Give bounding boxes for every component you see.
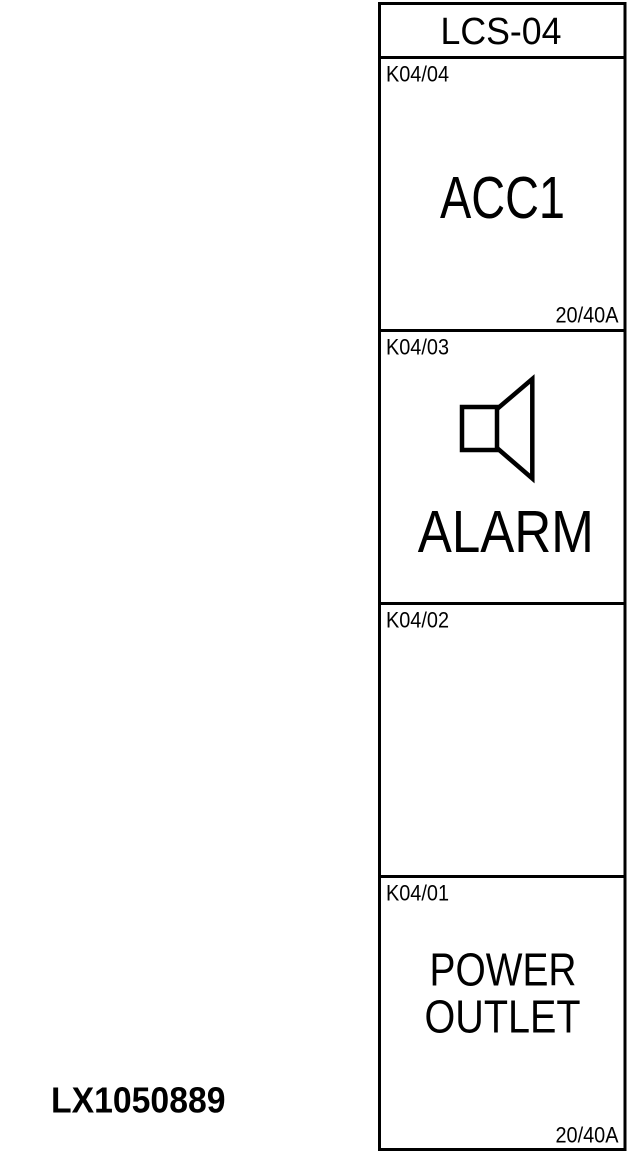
svg-text:20/40A: 20/40A xyxy=(556,302,619,327)
svg-text:LX1050889: LX1050889 xyxy=(51,1079,226,1120)
svg-text:OUTLET: OUTLET xyxy=(425,991,581,1043)
svg-text:POWER: POWER xyxy=(430,943,577,995)
svg-text:K04/03: K04/03 xyxy=(386,335,449,360)
svg-text:K04/01: K04/01 xyxy=(386,881,449,906)
svg-text:20/40A: 20/40A xyxy=(556,1122,619,1147)
svg-text:ALARM: ALARM xyxy=(418,499,594,565)
svg-text:K04/02: K04/02 xyxy=(386,608,449,633)
svg-text:LCS-04: LCS-04 xyxy=(441,11,562,53)
svg-text:ACC1: ACC1 xyxy=(440,165,565,231)
svg-text:K04/04: K04/04 xyxy=(386,62,449,87)
